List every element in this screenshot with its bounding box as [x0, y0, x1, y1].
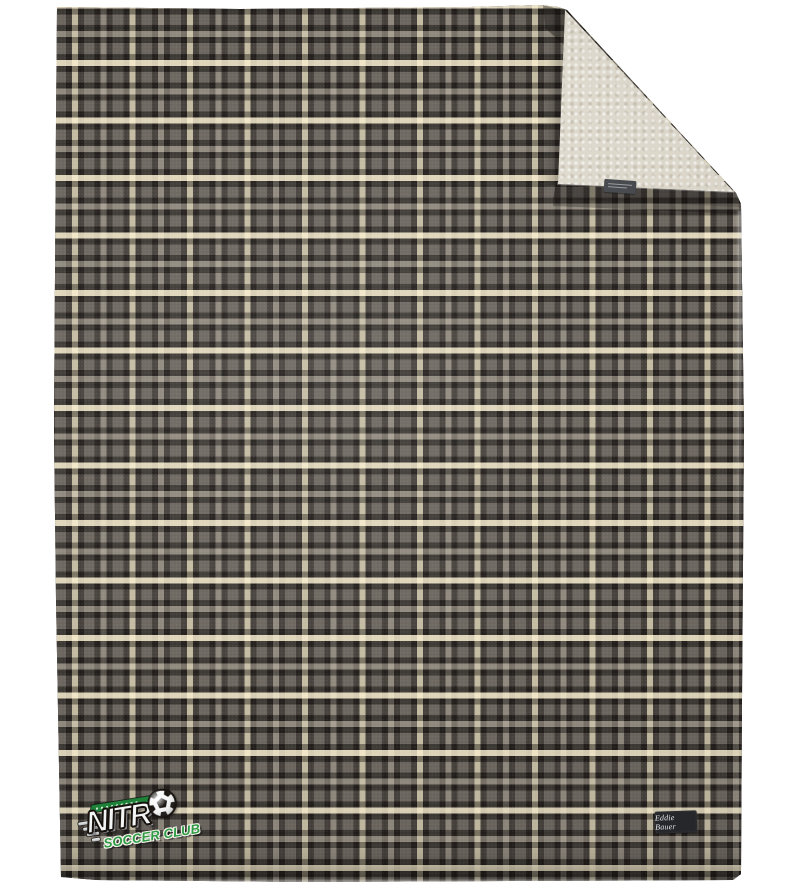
top-edge-highlight: [90, 3, 560, 7]
soccer-ball-icon: [145, 786, 179, 820]
product-photo: NITR: [0, 0, 800, 887]
blanket: NITR: [0, 0, 800, 887]
eddie-bauer-patch: Eddie Bauer: [655, 810, 698, 833]
bottom-edge-highlight: [85, 880, 715, 884]
eddie-bauer-label: Eddie Bauer: [655, 812, 698, 831]
lighting-vignette: [0, 0, 800, 887]
right-edge-highlight: [738, 210, 742, 590]
